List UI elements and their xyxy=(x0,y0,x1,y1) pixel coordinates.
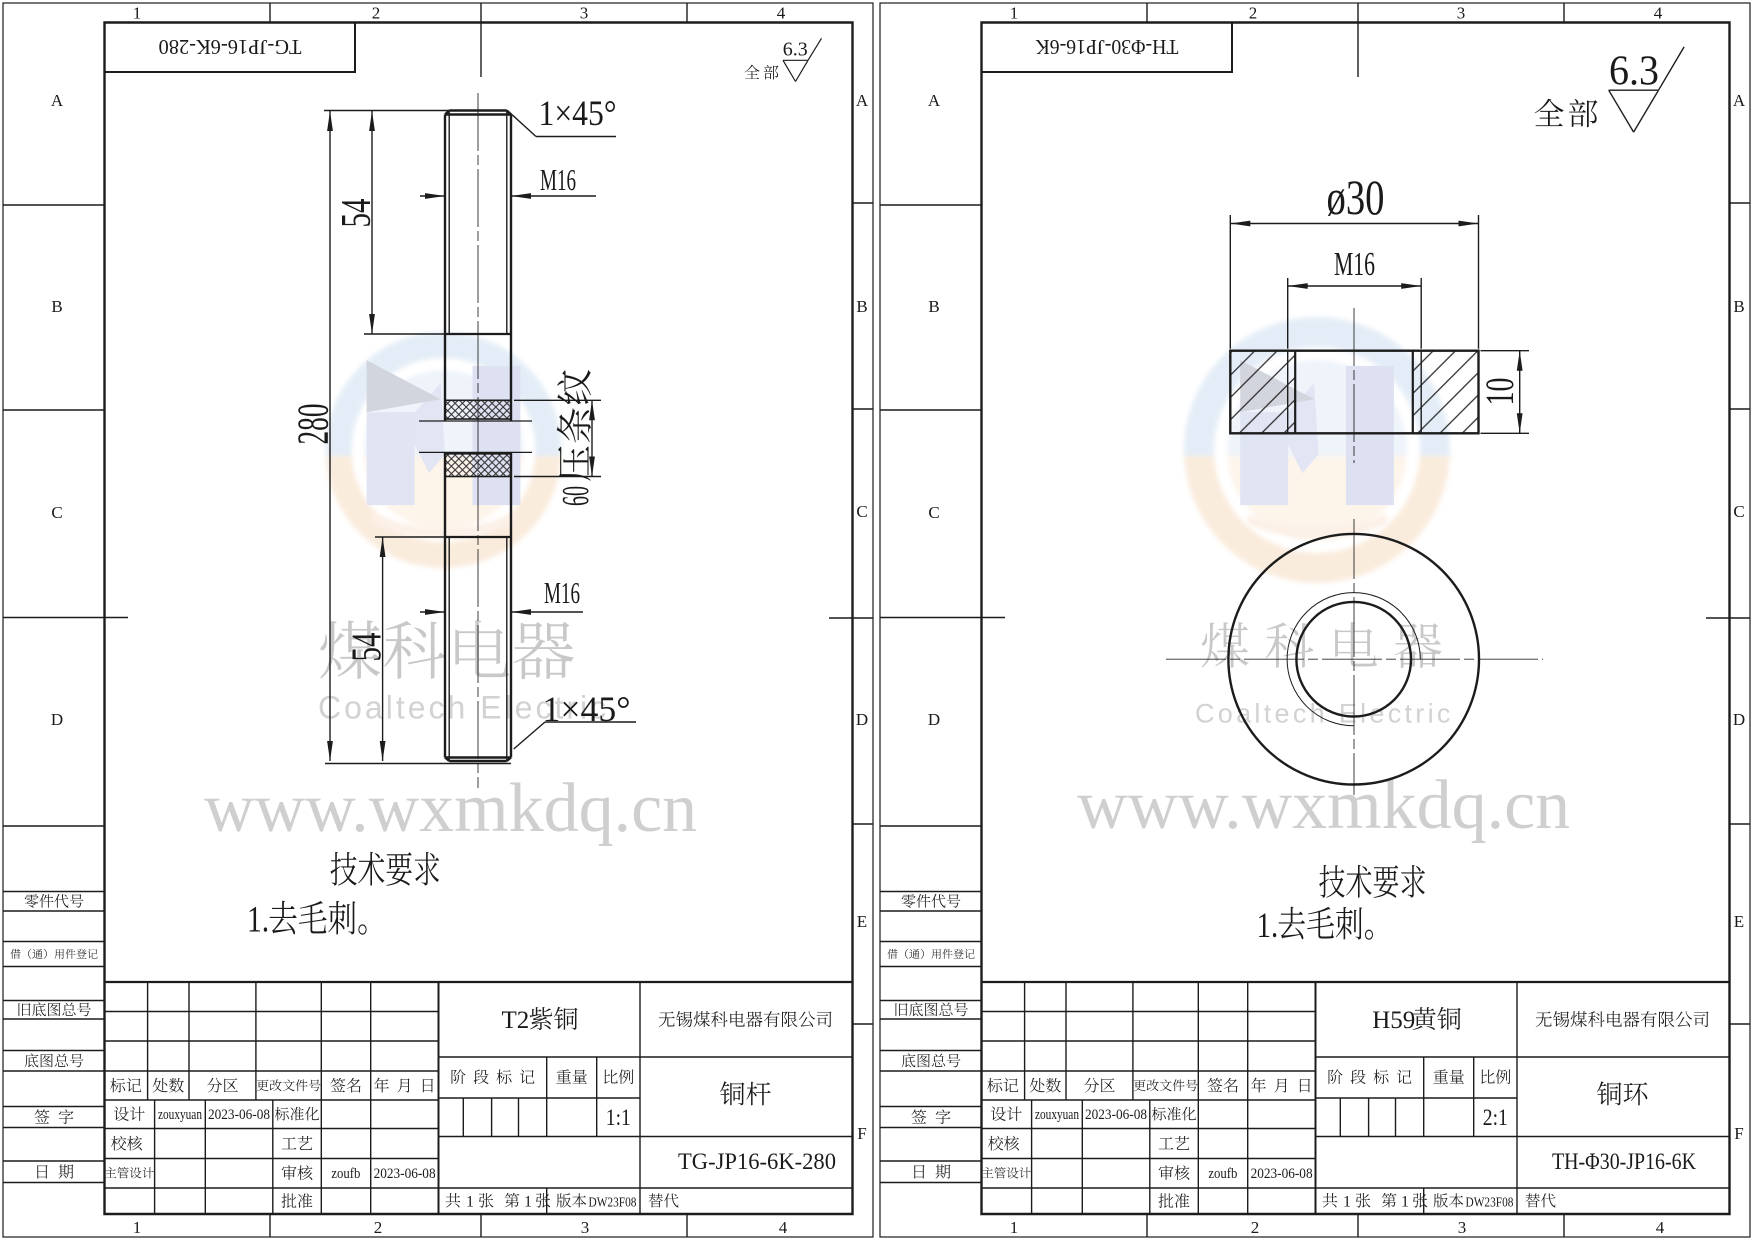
svg-text:3: 3 xyxy=(1458,1218,1467,1237)
svg-text:2: 2 xyxy=(1249,4,1258,23)
svg-text:2023-06-08: 2023-06-08 xyxy=(1085,1107,1147,1123)
svg-text:TH-Φ30-JP16-6K: TH-Φ30-JP16-6K xyxy=(1036,35,1179,59)
svg-text:6.3: 6.3 xyxy=(1609,49,1659,95)
svg-text:www.wxmkdq.cn: www.wxmkdq.cn xyxy=(1077,767,1570,844)
svg-text:zouxyuan: zouxyuan xyxy=(1035,1107,1079,1123)
svg-text:1×45°: 1×45° xyxy=(543,689,631,729)
svg-text:E: E xyxy=(1734,912,1744,931)
svg-text:M16: M16 xyxy=(1334,246,1375,283)
svg-text:6.3: 6.3 xyxy=(783,39,808,61)
svg-text:zoufb: zoufb xyxy=(331,1166,360,1182)
svg-text:D: D xyxy=(51,710,63,729)
svg-text:1: 1 xyxy=(524,1194,532,1211)
svg-text:A: A xyxy=(1733,91,1746,110)
svg-text:Coaltech Electric: Coaltech Electric xyxy=(1195,699,1454,729)
svg-text:280: 280 xyxy=(289,404,338,445)
svg-text:M16: M16 xyxy=(544,575,580,610)
svg-text:4: 4 xyxy=(777,4,786,23)
svg-text:2: 2 xyxy=(1251,1218,1260,1237)
svg-text:2: 2 xyxy=(372,4,381,23)
svg-text:A: A xyxy=(51,91,64,110)
svg-text:1: 1 xyxy=(1401,1194,1409,1211)
svg-text:C: C xyxy=(856,502,867,521)
svg-text:ø30: ø30 xyxy=(1327,169,1385,225)
svg-text:B: B xyxy=(1733,297,1744,316)
svg-text:4: 4 xyxy=(1656,1218,1665,1237)
svg-text:T2: T2 xyxy=(502,1007,530,1034)
svg-text:C: C xyxy=(1733,502,1744,521)
svg-text:D: D xyxy=(856,710,868,729)
svg-text:1×45°: 1×45° xyxy=(539,93,617,133)
svg-text:A: A xyxy=(856,91,869,110)
svg-text:1.: 1. xyxy=(1257,906,1279,946)
svg-text:54: 54 xyxy=(345,633,391,662)
svg-text:M16: M16 xyxy=(540,162,576,197)
svg-text:1: 1 xyxy=(1010,1218,1019,1237)
svg-text:3: 3 xyxy=(1457,4,1466,23)
svg-text:4: 4 xyxy=(1654,4,1663,23)
svg-text:60: 60 xyxy=(555,486,597,506)
svg-text:DW23F08: DW23F08 xyxy=(1466,1195,1514,1210)
svg-text:D: D xyxy=(1733,710,1745,729)
svg-text:www.wxmkdq.cn: www.wxmkdq.cn xyxy=(204,770,697,847)
svg-text:1: 1 xyxy=(133,4,142,23)
svg-text:E: E xyxy=(857,912,867,931)
svg-text:1.: 1. xyxy=(247,900,269,941)
svg-text:zouxyuan: zouxyuan xyxy=(158,1107,202,1123)
svg-text:F: F xyxy=(857,1124,866,1143)
svg-text:1:1: 1:1 xyxy=(606,1105,631,1130)
svg-text:2023-06-08: 2023-06-08 xyxy=(374,1166,436,1182)
svg-text:H59: H59 xyxy=(1372,1007,1415,1034)
svg-text:C: C xyxy=(928,503,939,522)
svg-text:3: 3 xyxy=(581,1218,590,1237)
svg-text:2023-06-08: 2023-06-08 xyxy=(208,1107,270,1123)
svg-text:TG-JP16-6K-280: TG-JP16-6K-280 xyxy=(159,35,302,59)
svg-text:2023-06-08: 2023-06-08 xyxy=(1251,1166,1313,1182)
svg-text:B: B xyxy=(928,297,939,316)
svg-text:1: 1 xyxy=(1010,4,1019,23)
svg-text:1: 1 xyxy=(133,1218,142,1237)
svg-text:TG-JP16-6K-280: TG-JP16-6K-280 xyxy=(678,1149,836,1174)
svg-text:B: B xyxy=(51,297,62,316)
svg-text:A: A xyxy=(928,91,941,110)
svg-text:D: D xyxy=(928,710,940,729)
svg-text:3: 3 xyxy=(580,4,589,23)
svg-text:B: B xyxy=(856,297,867,316)
svg-text:zoufb: zoufb xyxy=(1208,1166,1237,1182)
svg-text:TH-Φ30-JP16-6K: TH-Φ30-JP16-6K xyxy=(1552,1149,1696,1174)
svg-text:54: 54 xyxy=(334,199,380,228)
svg-text:DW23F08: DW23F08 xyxy=(589,1195,637,1210)
svg-text:2:1: 2:1 xyxy=(1483,1105,1508,1130)
svg-text:4: 4 xyxy=(779,1218,788,1237)
svg-text:2: 2 xyxy=(374,1218,383,1237)
svg-text:1: 1 xyxy=(1343,1194,1351,1211)
svg-text:10: 10 xyxy=(1477,378,1522,406)
svg-text:1: 1 xyxy=(466,1194,474,1211)
svg-text:C: C xyxy=(51,503,62,522)
svg-text:F: F xyxy=(1734,1124,1743,1143)
